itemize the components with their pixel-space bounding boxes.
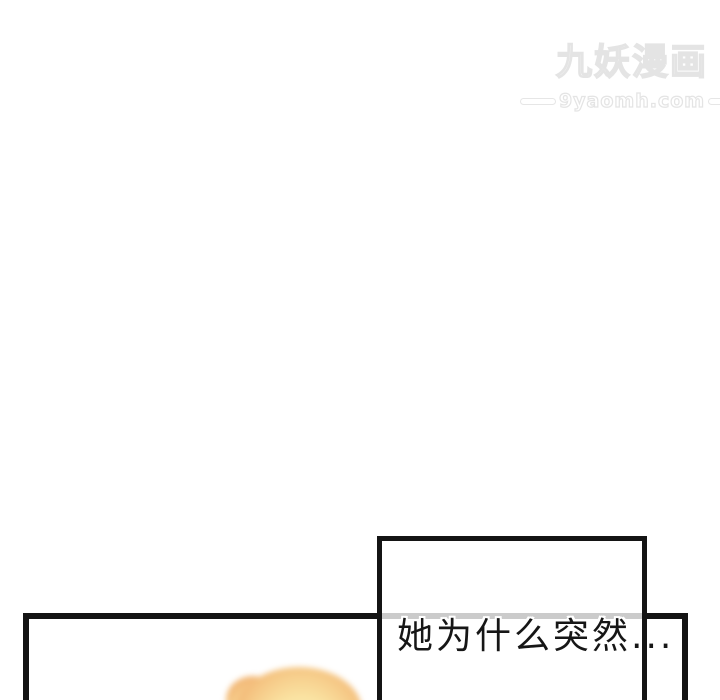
- decorative-line-right: [708, 98, 720, 105]
- watermark-url: 9yaomh.com: [559, 90, 705, 112]
- watermark-title: 九妖漫画: [548, 44, 716, 82]
- site-watermark: 九妖漫画 9yaomh.com: [548, 44, 716, 112]
- watermark-url-row: 9yaomh.com: [548, 90, 716, 112]
- speech-text: 她为什么突然...: [397, 617, 674, 657]
- comic-page: 九妖漫画 9yaomh.com 她为什么突然...: [0, 0, 720, 700]
- decorative-line-left: [520, 98, 556, 105]
- speech-bubble: 她为什么突然...: [377, 536, 647, 700]
